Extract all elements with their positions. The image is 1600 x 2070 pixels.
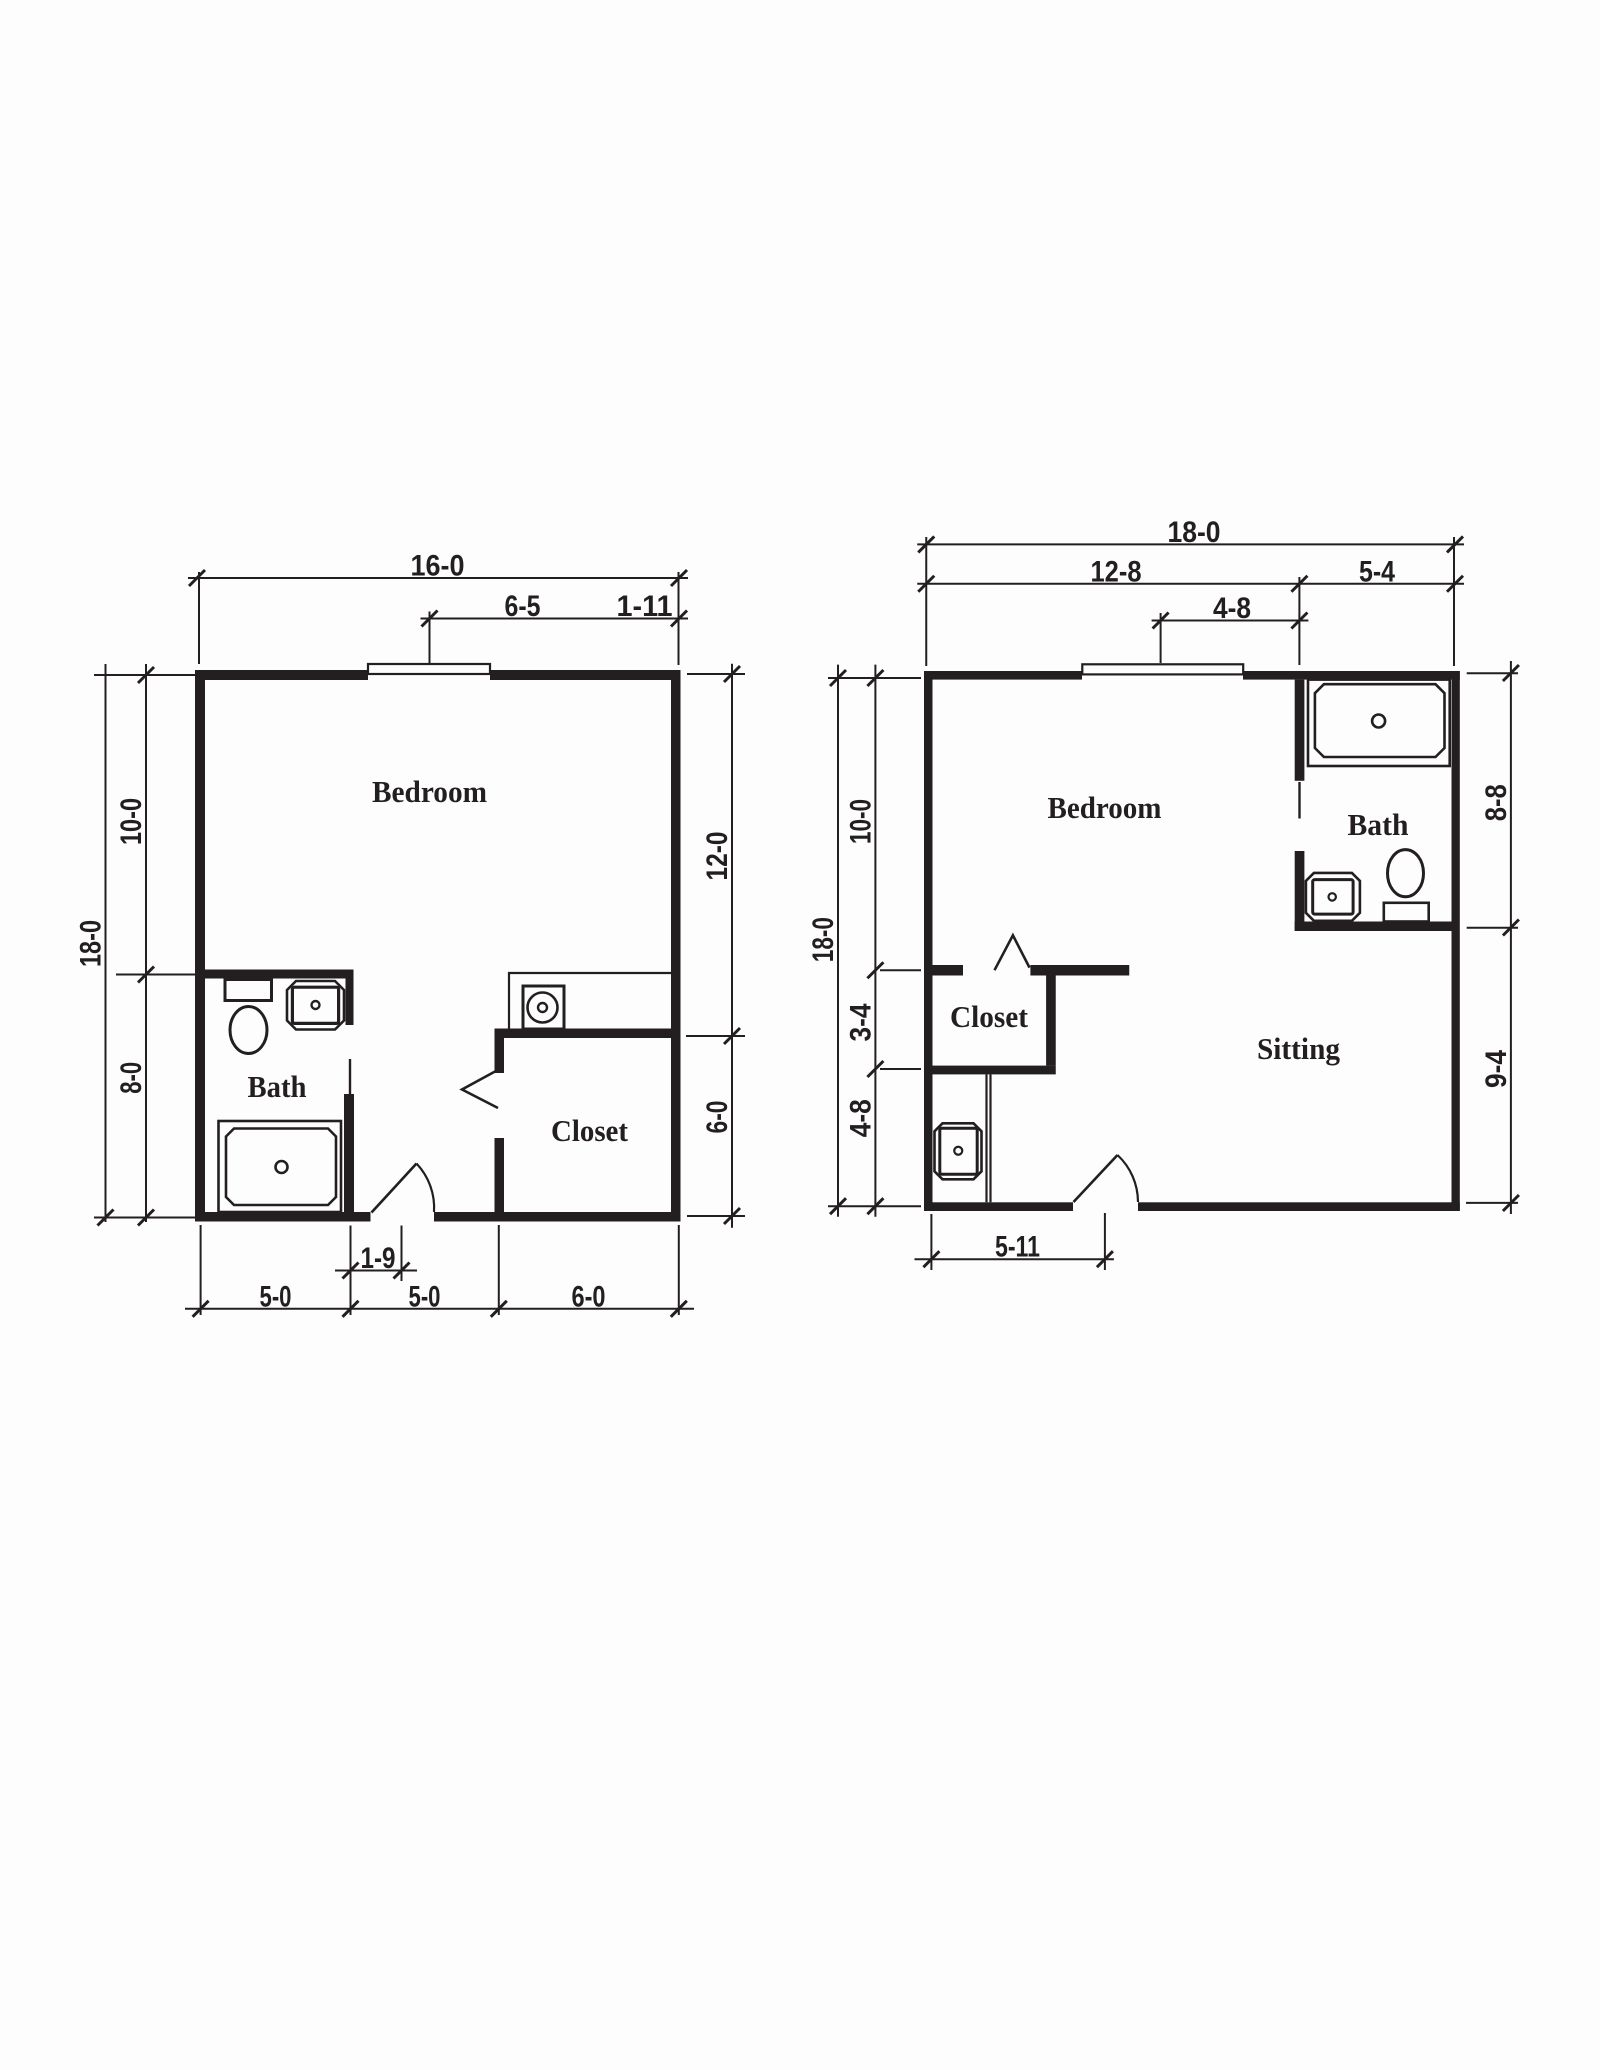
svg-text:Bath: Bath: [248, 1069, 307, 1104]
svg-text:12-0: 12-0: [701, 832, 734, 881]
svg-text:Closet: Closet: [551, 1113, 629, 1148]
svg-text:12-8: 12-8: [1091, 555, 1142, 588]
svg-text:6-0: 6-0: [572, 1280, 606, 1313]
svg-text:Closet: Closet: [950, 999, 1029, 1034]
svg-text:10-0: 10-0: [844, 799, 877, 844]
svg-text:5-0: 5-0: [260, 1280, 292, 1313]
svg-text:10-0: 10-0: [115, 798, 148, 845]
svg-text:16-0: 16-0: [411, 550, 465, 583]
svg-text:18-0: 18-0: [1168, 516, 1221, 549]
svg-text:5-4: 5-4: [1359, 555, 1395, 588]
svg-text:4-8: 4-8: [844, 1099, 877, 1137]
svg-text:8-8: 8-8: [1480, 784, 1513, 821]
svg-text:Bedroom: Bedroom: [1048, 790, 1162, 825]
svg-text:6-0: 6-0: [701, 1101, 734, 1134]
svg-text:6-5: 6-5: [505, 590, 541, 623]
svg-text:5-0: 5-0: [409, 1280, 441, 1313]
svg-text:Bedroom: Bedroom: [372, 774, 487, 809]
svg-text:4-8: 4-8: [1213, 592, 1251, 625]
svg-text:9-4: 9-4: [1480, 1050, 1513, 1088]
svg-text:Bath: Bath: [1348, 807, 1409, 842]
svg-text:18-0: 18-0: [75, 920, 108, 967]
svg-text:8-0: 8-0: [115, 1062, 148, 1094]
svg-text:18-0: 18-0: [807, 917, 840, 962]
svg-text:Sitting: Sitting: [1257, 1031, 1340, 1066]
svg-text:1-9: 1-9: [361, 1242, 396, 1275]
svg-text:3-4: 3-4: [844, 1003, 877, 1041]
svg-text:1-11: 1-11: [617, 590, 673, 623]
svg-text:5-11: 5-11: [995, 1231, 1040, 1264]
